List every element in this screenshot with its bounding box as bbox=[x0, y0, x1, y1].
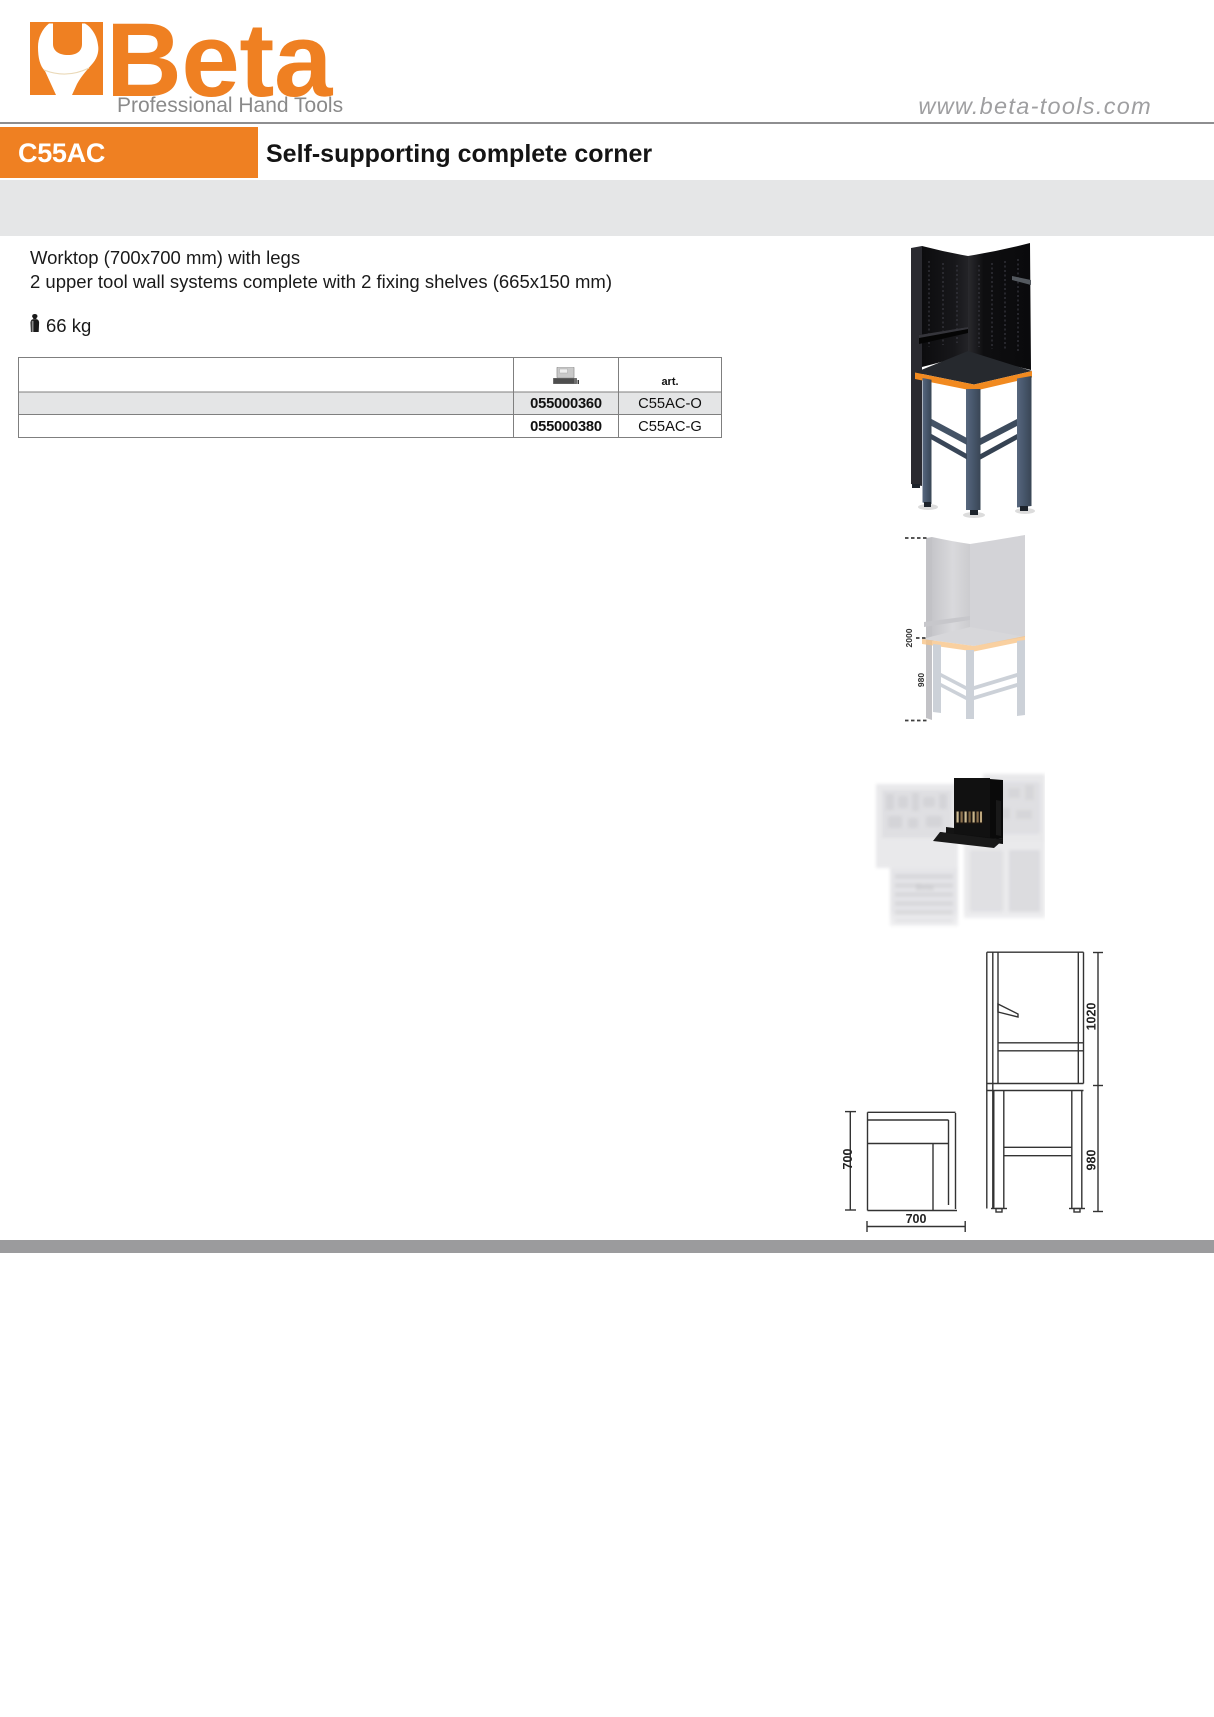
svg-text:1020: 1020 bbox=[1085, 1003, 1099, 1031]
svg-text:980: 980 bbox=[1085, 1150, 1099, 1171]
svg-text:700: 700 bbox=[841, 1149, 855, 1170]
svg-text:980: 980 bbox=[916, 673, 926, 687]
svg-text:Beta: Beta bbox=[916, 883, 934, 892]
svg-text:700: 700 bbox=[906, 1212, 927, 1226]
svg-text:2000: 2000 bbox=[904, 628, 914, 647]
